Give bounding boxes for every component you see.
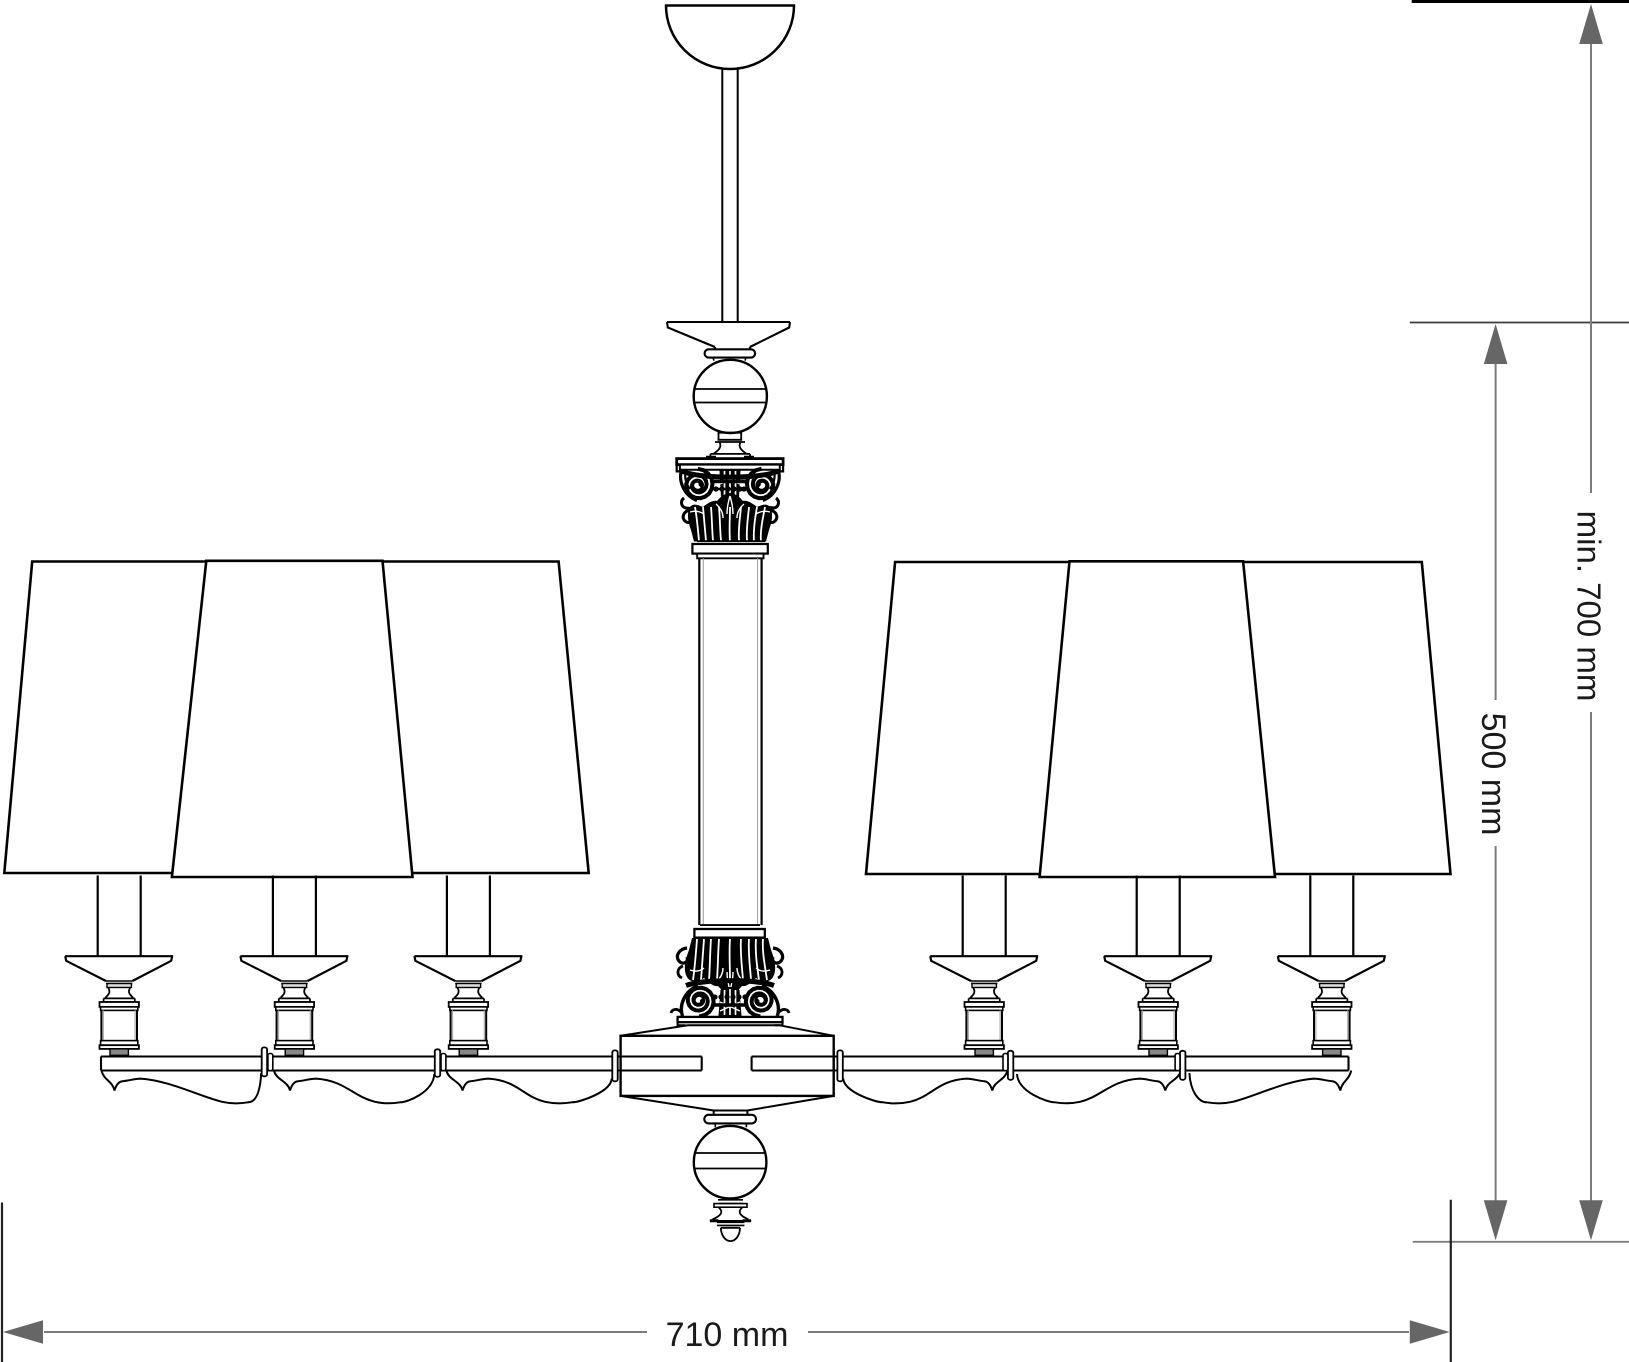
svg-text:min. 700 mm: min. 700 mm: [1571, 511, 1608, 702]
svg-text:710 mm: 710 mm: [666, 1316, 789, 1354]
svg-text:500 mm: 500 mm: [1474, 713, 1512, 836]
